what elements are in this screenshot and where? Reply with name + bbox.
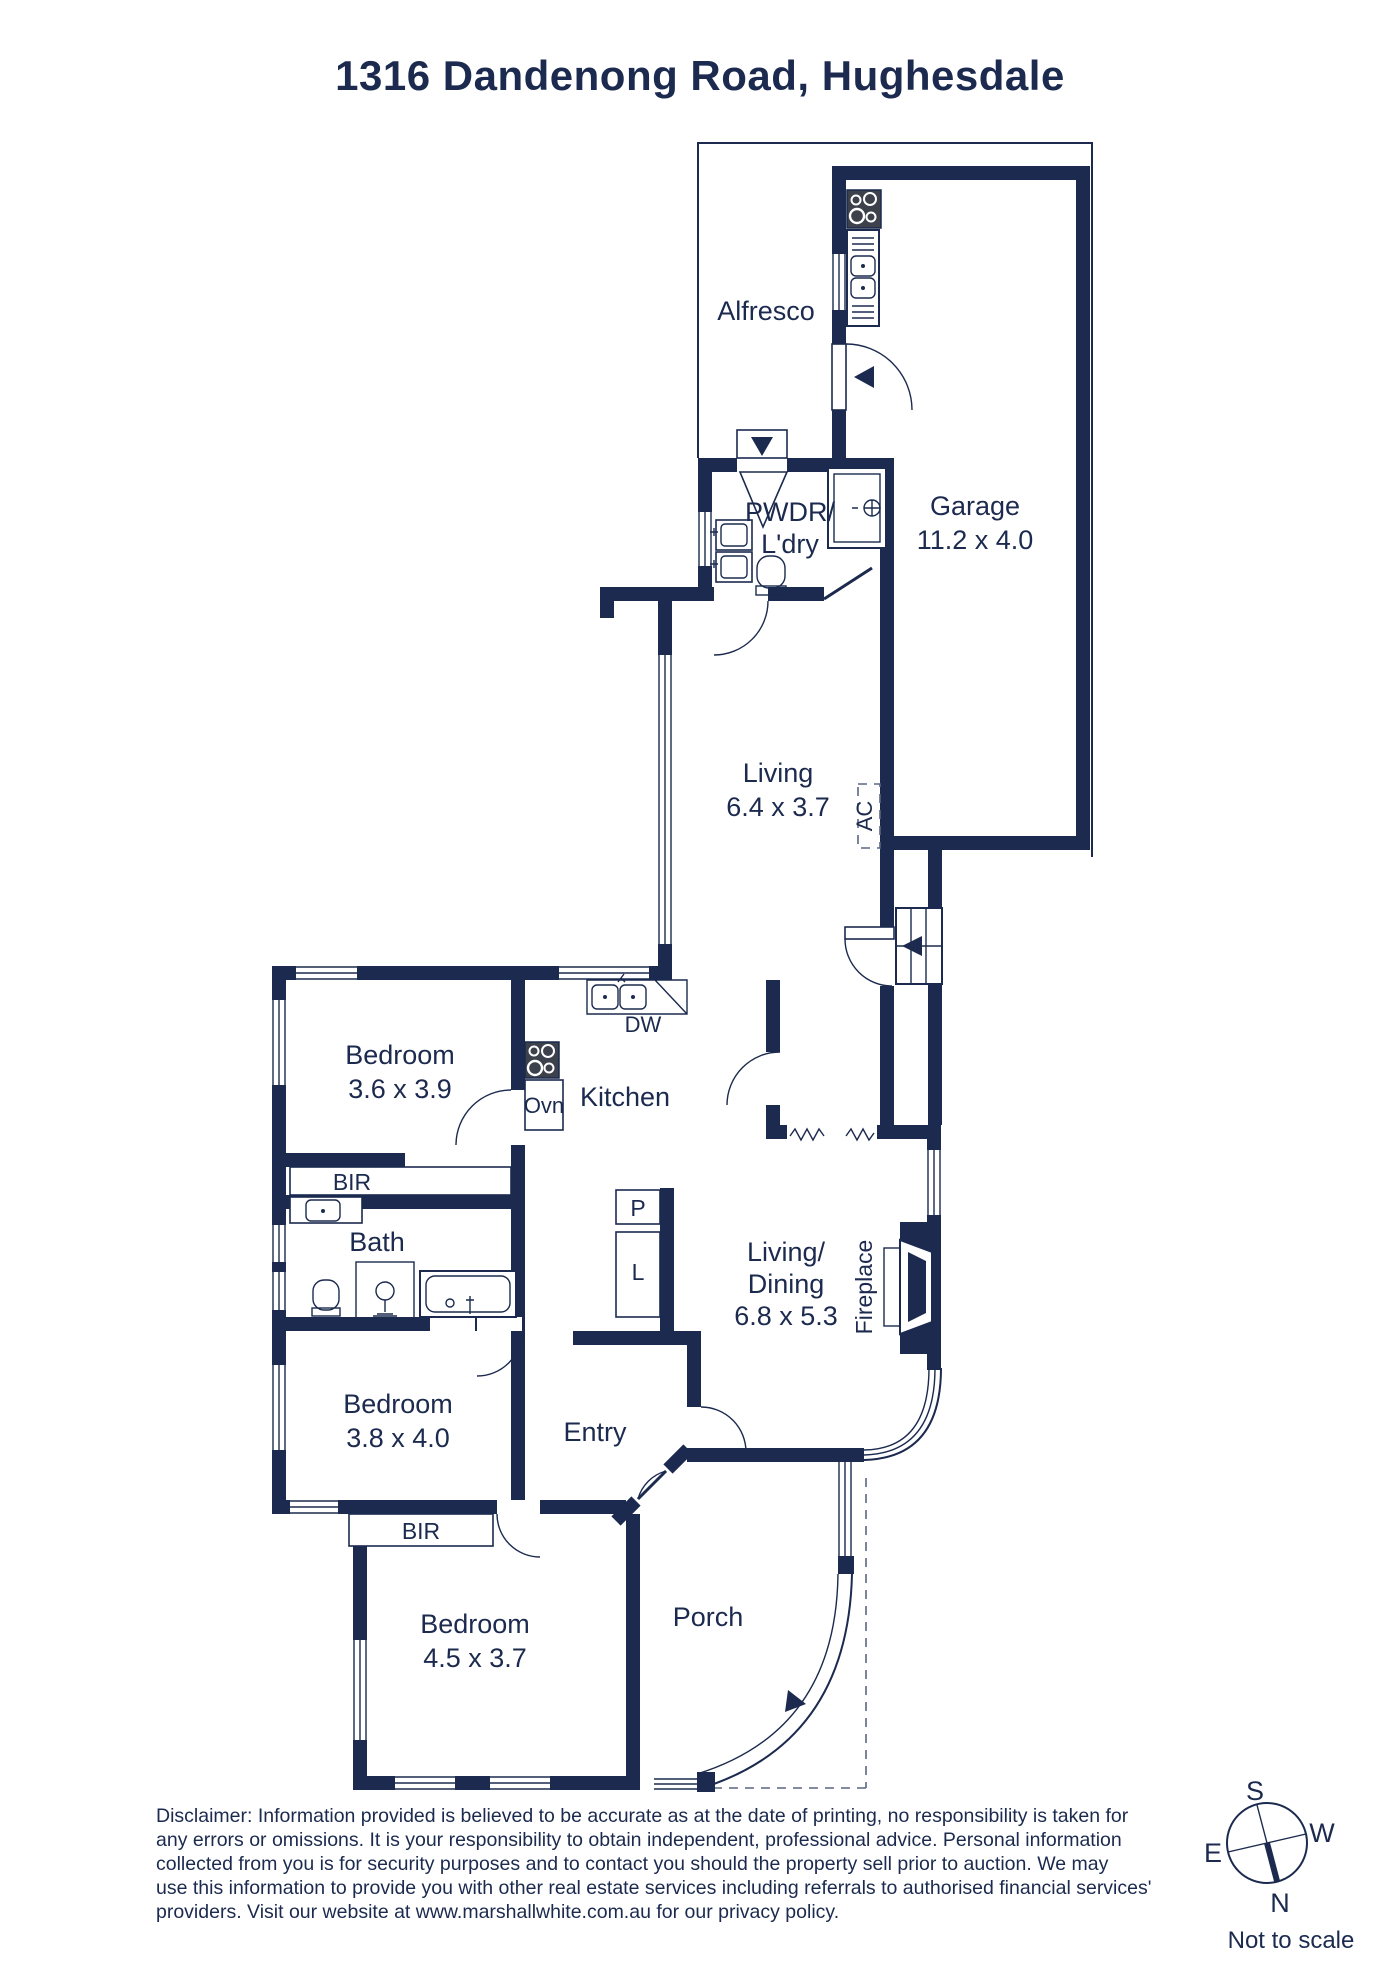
label-dishwasher: DW: [625, 1012, 662, 1037]
room-dims-living: 6.4 x 3.7: [726, 792, 830, 822]
room-dims-bedroom2: 3.8 x 4.0: [346, 1423, 450, 1453]
room-label-bedroom1: Bedroom: [345, 1040, 455, 1070]
page-title: 1316 Dandenong Road, Hughesdale: [335, 52, 1065, 99]
label-fireplace: Fireplace: [851, 1240, 877, 1335]
compass-south: S: [1246, 1776, 1264, 1806]
laundry-tubs: [710, 520, 752, 582]
room-dims-livingdining: 6.8 x 5.3: [734, 1301, 838, 1331]
room-label-porch: Porch: [673, 1602, 744, 1632]
fireplace: [884, 1240, 932, 1334]
stairs: [896, 908, 942, 984]
room-label-livingdining-line2: Dining: [748, 1269, 825, 1299]
disclaimer-line-1: Disclaimer: Information provided is beli…: [156, 1805, 1129, 1827]
bbq-cooktop: [847, 190, 881, 228]
room-label-pwdr-line1: PWDR/: [745, 497, 835, 527]
toilet-bath: [312, 1280, 340, 1316]
disclaimer-line-2: any errors or omissions. It is your resp…: [156, 1829, 1122, 1851]
room-dims-bedroom3: 4.5 x 3.7: [423, 1643, 527, 1673]
room-dims-bedroom1: 3.6 x 3.9: [348, 1074, 452, 1104]
bathtub: [420, 1271, 516, 1317]
scale-note: Not to scale: [1228, 1927, 1355, 1954]
floor-plan: 1316 Dandenong Road, Hughesdale: [0, 0, 1400, 1980]
room-label-bedroom3: Bedroom: [420, 1609, 530, 1639]
disclaimer: Disclaimer: Information provided is beli…: [156, 1805, 1151, 1923]
label-pantry: P: [630, 1195, 645, 1221]
room-label-kitchen: Kitchen: [580, 1082, 670, 1112]
disclaimer-line-4: use this information to provide you with…: [156, 1877, 1151, 1899]
room-dims-garage: 11.2 x 4.0: [917, 525, 1034, 555]
label-linen: L: [632, 1259, 645, 1285]
shower-bath: [356, 1262, 414, 1320]
room-label-bath: Bath: [349, 1227, 405, 1257]
room-label-pwdr-line2: L'dry: [761, 529, 819, 559]
room-label-living: Living: [743, 758, 814, 788]
compass-east: E: [1204, 1838, 1222, 1868]
outdoor-sink-unit: [847, 230, 879, 326]
room-label-alfresco: Alfresco: [717, 296, 815, 326]
closets: [290, 1167, 660, 1546]
shower-pwdr: [828, 468, 886, 548]
label-robe1: BIR: [333, 1169, 371, 1195]
compass-west: W: [1309, 1818, 1335, 1848]
compass-north: N: [1270, 1888, 1290, 1918]
air-conditioner: AC: [852, 784, 880, 848]
room-label-bedroom2: Bedroom: [343, 1389, 453, 1419]
kitchen-cooktop: [525, 1042, 559, 1078]
room-label-garage: Garage: [930, 491, 1020, 521]
label-oven: Ovn: [524, 1093, 564, 1118]
compass: S W E N: [1204, 1776, 1335, 1918]
room-label-entry: Entry: [563, 1417, 627, 1447]
room-label-livingdining-line1: Living/: [747, 1237, 826, 1267]
disclaimer-line-5: providers. Visit our website at www.mars…: [156, 1901, 839, 1923]
ac-label: AC: [852, 801, 877, 832]
walls: [272, 166, 1090, 1792]
disclaimer-line-3: collected from you is for security purpo…: [156, 1853, 1109, 1875]
kitchen-sink-counter: [587, 974, 687, 1014]
porch-dashed-boundary: [715, 1478, 866, 1788]
label-robe2: BIR: [402, 1518, 440, 1544]
wall-opening-marks: [790, 1129, 874, 1140]
